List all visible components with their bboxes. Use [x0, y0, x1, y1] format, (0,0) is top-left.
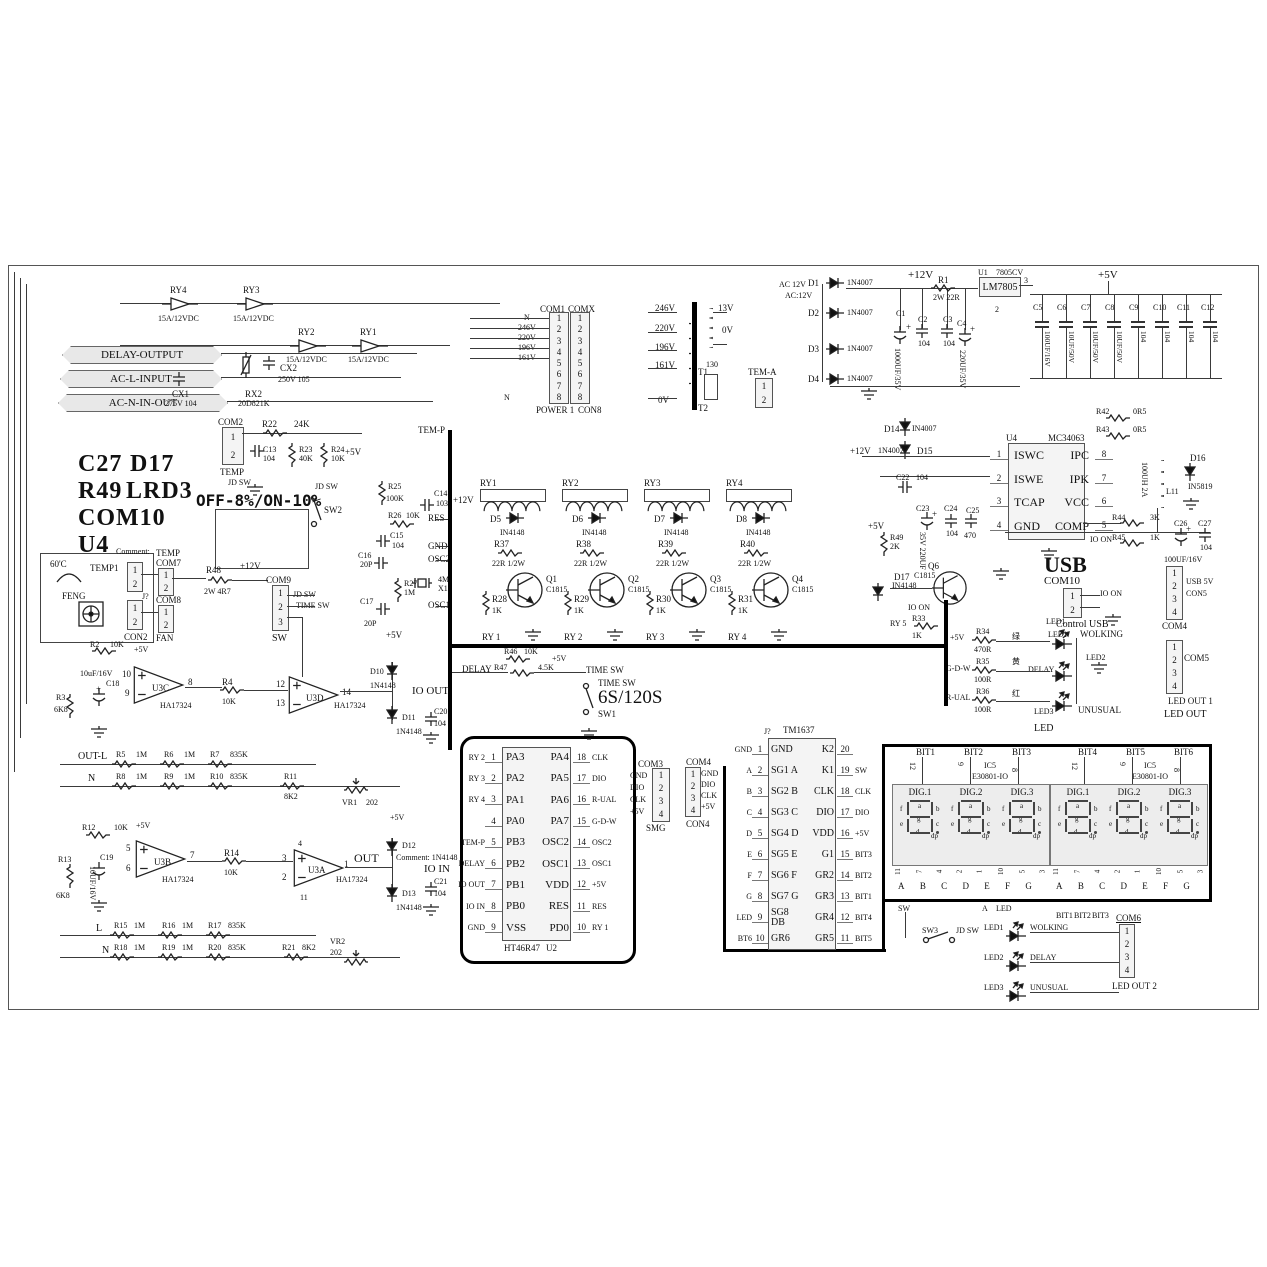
- pin-name: GND: [768, 745, 804, 755]
- part-value: 10UF/50V: [1115, 331, 1124, 363]
- part-value: 100R: [974, 706, 991, 714]
- part-number: HA17324: [160, 702, 192, 710]
- part-ref: VR1: [342, 799, 357, 807]
- part-value: 100R: [974, 676, 991, 684]
- com8-connector: 12: [158, 605, 174, 633]
- pin-number: 14: [837, 871, 853, 881]
- pin-number: 3: [1172, 669, 1177, 678]
- pin-number: 2: [1114, 870, 1121, 874]
- resistor-ref: R31: [738, 595, 753, 604]
- pin-name: IPK: [1051, 473, 1095, 485]
- resistor-icon: [482, 591, 490, 615]
- diode-icon: [670, 512, 688, 524]
- pin-row: BT610GR6GR511BIT5: [720, 928, 889, 949]
- resistor-value: 1K: [656, 607, 666, 615]
- pin-number: 3: [557, 337, 562, 346]
- part-ref: R48: [206, 566, 221, 575]
- resistor-icon: [931, 284, 955, 292]
- diode-icon: [899, 418, 911, 436]
- pin-row: IO OUT7PB1VDD12+5V: [455, 875, 632, 896]
- power-label: +5V: [386, 631, 402, 640]
- pin-number: 2: [995, 306, 999, 314]
- part-value: 24K: [294, 420, 310, 429]
- relay-ref: RY2: [562, 479, 579, 488]
- connector-label: TEMP: [156, 549, 180, 558]
- net-label: BIT3: [853, 851, 889, 859]
- connector-label: LED OUT 2: [1112, 982, 1157, 991]
- part-ref: D4: [808, 375, 819, 384]
- resistor-icon: [86, 831, 110, 839]
- pin-row: DELAY6PB2OSC113OSC1: [455, 853, 632, 874]
- display-bottom-pins: 1174211053: [1053, 868, 1203, 875]
- part-value: 104: [434, 890, 446, 898]
- part-value: 8K2: [302, 944, 316, 952]
- net-label: TEM-P: [418, 426, 445, 435]
- part-value: 1M: [184, 751, 195, 759]
- wire: [185, 687, 222, 688]
- part-value: 1M: [134, 944, 145, 952]
- net-label: +5V: [630, 808, 644, 816]
- transistor-icon: [752, 571, 790, 609]
- net-label: RY 4: [728, 633, 746, 642]
- diode-icon: [1184, 463, 1196, 481]
- temp1-connector: 12: [127, 562, 143, 592]
- wire: [242, 433, 362, 434]
- net-label: G: [720, 893, 752, 901]
- net-label: BIT3: [1092, 912, 1109, 920]
- resistor-icon: [662, 549, 686, 557]
- part-ref: X1: [438, 585, 448, 593]
- rail-capacitor: C11104: [1176, 294, 1198, 380]
- segment-letter: B: [1078, 882, 1084, 891]
- wire: [1180, 757, 1181, 784]
- pin-number: 7: [916, 870, 923, 874]
- schematic-canvas: DELAY-OUTPUT AC-L-INPUT AC-N-IN-OUT RY4 …: [0, 0, 1267, 1267]
- net-label: GND: [630, 772, 647, 780]
- part-value: 2K: [890, 543, 900, 551]
- net-label: RY 2: [564, 633, 582, 642]
- resistor-icon: [280, 782, 304, 790]
- segment-label: b: [1196, 805, 1200, 813]
- pin-name: PA2: [502, 773, 539, 784]
- resistor-icon: [92, 647, 116, 655]
- ground-icon: [90, 726, 108, 738]
- part-ref: C8: [1105, 303, 1114, 312]
- connector-label: CON5: [1186, 590, 1207, 598]
- seven-segment-glyph: [1167, 800, 1193, 834]
- pin-number: 4: [578, 348, 583, 357]
- pin-number: 1: [1172, 643, 1177, 652]
- resistor-icon: [972, 636, 996, 644]
- segment-letter: G: [1025, 882, 1032, 891]
- wire: [862, 456, 990, 457]
- part-ref: U1: [978, 269, 988, 277]
- part-value: 470: [964, 532, 976, 540]
- resistor-icon: [263, 429, 287, 437]
- part-value: 1N4007: [847, 309, 873, 317]
- capacitor-icon: [1198, 528, 1212, 542]
- wire: [890, 588, 932, 589]
- pin-number: 1: [231, 433, 236, 442]
- part-ref: L11: [1166, 488, 1179, 496]
- pin-row: LED9SG8 DBGR412BIT4: [720, 907, 889, 928]
- part-ref: D12: [402, 842, 416, 850]
- part-value: 1M: [182, 944, 193, 952]
- wire: [830, 386, 1020, 387]
- segment-letter: A: [1056, 882, 1063, 891]
- part-ref: C6: [1057, 303, 1066, 312]
- pin-number: 2: [282, 873, 287, 882]
- part-value: 40K: [299, 455, 313, 463]
- part-ref: C1: [896, 310, 905, 318]
- segment-label: e: [1109, 820, 1112, 828]
- pin-name: GND: [1008, 520, 1051, 532]
- part-ref: U3B: [154, 858, 171, 867]
- pin-number: 2: [1070, 606, 1075, 615]
- relay-rating: 15A/12VDC: [348, 356, 389, 364]
- diode-icon: [588, 512, 606, 524]
- wire: [244, 690, 288, 691]
- net-tag-ac-n-in-out: AC-N-IN-OUT: [58, 394, 228, 412]
- pin-name: COMP: [1051, 520, 1095, 532]
- part-value: 1N4007: [847, 375, 873, 383]
- net-label: TIME SW: [586, 666, 624, 675]
- part-value: 470R: [974, 646, 991, 654]
- pin-number: 11: [1053, 868, 1060, 875]
- part-ref: C7: [1081, 303, 1090, 312]
- tm1637-pins: GND1GNDK220A2SG1 AK119SWB3SG2 BCLK18CLKC…: [720, 739, 889, 949]
- net-label: BIT6: [1174, 748, 1193, 757]
- color-label: 红: [1012, 690, 1020, 698]
- pin-row: A2SG1 AK119SW: [720, 760, 889, 781]
- annotation-text: LRD3: [126, 479, 193, 503]
- resistor-icon: [206, 953, 230, 961]
- relay-rating: 15A/12VDC: [158, 315, 199, 323]
- diode-ref: D8: [736, 515, 747, 524]
- part-ref: LED3: [984, 984, 1004, 992]
- wire: [1030, 932, 1119, 933]
- pin-number: 4: [1125, 966, 1130, 975]
- part-ref: R23: [299, 446, 312, 454]
- bus-line: [944, 600, 948, 706]
- part-ref: U3A: [308, 866, 326, 875]
- capacitor-icon: [893, 326, 907, 344]
- part-ref: J?: [764, 728, 771, 736]
- display-module-2: DIG.1 a f b g e c d dp DIG.2 a f b g e c…: [1050, 784, 1208, 866]
- part-ref: R20: [208, 944, 221, 952]
- part-value: 10K: [331, 455, 345, 463]
- net-label: N: [102, 946, 109, 956]
- net-label: IO OUT: [412, 686, 449, 697]
- net-label: BIT4: [1078, 748, 1097, 757]
- wire: [287, 606, 315, 607]
- part-number: TM1637: [783, 726, 815, 735]
- part-ref: R26: [388, 512, 401, 520]
- wire: [470, 338, 549, 339]
- inductor-icon: [1150, 460, 1164, 508]
- resistor-value: 1K: [492, 607, 502, 615]
- pin-name: PB0: [502, 901, 539, 912]
- resistor-value: 22R 1/2W: [574, 560, 607, 568]
- wire: [1030, 992, 1119, 993]
- resistor-icon: [110, 931, 134, 939]
- pin-number: 5: [126, 844, 131, 853]
- net-label: G-D-W: [946, 665, 970, 673]
- potentiometer-icon: [342, 776, 370, 796]
- pin-number: 11: [837, 934, 853, 944]
- seven-segment-glyph: [1116, 800, 1142, 834]
- wire: [470, 348, 549, 349]
- rail-capacitor: C610UF/50V: [1056, 294, 1078, 380]
- digit-label: DIG.3: [1011, 787, 1034, 797]
- pin-number: 6: [485, 859, 502, 869]
- relay-rating: 15A/12VDC: [233, 315, 274, 323]
- resistor-icon: [1120, 539, 1144, 547]
- part-value: 1M: [136, 751, 147, 759]
- segment-label: e: [1058, 820, 1061, 828]
- pin-number: 1: [990, 450, 1008, 460]
- wire: [970, 757, 971, 784]
- wire: [846, 288, 978, 289]
- pin-name: VDD: [539, 880, 573, 891]
- resistor-icon: [66, 864, 74, 888]
- com4-left-connector: 1234: [685, 767, 701, 817]
- pin-number: 2: [1125, 940, 1130, 949]
- part-value: 1M: [136, 773, 147, 781]
- diode-value: IN4148: [746, 529, 770, 537]
- pin-number: 2: [133, 618, 138, 627]
- segment-label: c: [1145, 820, 1148, 828]
- pin-number: 2: [231, 451, 236, 460]
- part-ref: C9: [1129, 303, 1138, 312]
- capacitor-icon: [376, 602, 390, 616]
- part-ref: R35: [976, 658, 989, 666]
- pin-name: SG3 C: [768, 808, 804, 818]
- relay-contact-icon: [290, 338, 326, 354]
- pin-name: PA5: [539, 773, 573, 784]
- wire: [905, 912, 906, 938]
- net-label: RY 2: [455, 754, 485, 762]
- switch-ref: SW1: [598, 710, 616, 719]
- pin-number: 3: [278, 618, 283, 627]
- part-value: 1M: [182, 922, 193, 930]
- part-ref: C24: [944, 505, 957, 513]
- pin-number: 14: [573, 838, 590, 848]
- part-value: 3K: [1150, 514, 1160, 522]
- power-label: +12V: [850, 447, 871, 456]
- part-ref: RX2: [245, 390, 262, 399]
- pin-number: 4: [659, 810, 664, 819]
- connector-ref: COM7: [156, 559, 181, 568]
- pin-number: 4: [1172, 608, 1177, 617]
- segment-label: f: [900, 805, 902, 813]
- part-value: 1K: [1150, 534, 1160, 542]
- transformer-core: [692, 302, 697, 410]
- net-label: C: [720, 809, 752, 817]
- pin-row: C4SG3 CDIO17DIO: [720, 802, 889, 823]
- part-ref: D14: [884, 425, 900, 434]
- pin-number: 3: [691, 794, 696, 803]
- pin-number: 12: [276, 680, 285, 689]
- ground-icon: [90, 900, 108, 912]
- pin-number: 3: [1172, 595, 1177, 604]
- wire: [996, 671, 1050, 672]
- pin-number: 3: [1198, 870, 1205, 874]
- diode-icon: [826, 373, 844, 385]
- pin-name: PB1: [502, 880, 539, 891]
- part-ref: LED2: [1086, 654, 1106, 662]
- part-value: 1000UF/35V: [893, 348, 901, 390]
- wire: [648, 350, 677, 351]
- part-ref: R7: [210, 751, 219, 759]
- pin-name: GR2: [804, 871, 837, 881]
- pin-number: 2: [164, 621, 169, 630]
- comment-label: Comment:: [116, 548, 150, 556]
- part-value: 835K: [230, 751, 248, 759]
- pin-number: 2: [659, 784, 664, 793]
- wire: [1157, 508, 1158, 532]
- part-ref: R18: [114, 944, 127, 952]
- part-ref: R19: [162, 944, 175, 952]
- pin-name: SG7 G: [768, 892, 804, 902]
- resistor-icon: [1106, 432, 1130, 440]
- wire: [470, 328, 549, 329]
- pin-number: 7: [578, 382, 583, 391]
- pin-row: GND1GNDK220: [720, 739, 889, 760]
- part-value: 10UF/16V: [88, 866, 96, 900]
- part-ref: U3C: [152, 684, 169, 693]
- relay-driver-cell: RY2 D6 IN4148 R38 22R 1/2W Q2 C1815 R29 …: [560, 479, 642, 651]
- part-ref: LED2: [984, 954, 1004, 962]
- wire: [648, 398, 677, 399]
- resistor-value: 22R 1/2W: [492, 560, 525, 568]
- part-value: 4.5K: [538, 664, 554, 672]
- wire: [20, 278, 21, 738]
- com7-connector: 12: [158, 568, 174, 596]
- segment-letter: F: [1005, 882, 1010, 891]
- resistor-icon: [1120, 519, 1144, 527]
- part-value: 1M: [404, 589, 415, 597]
- connector-label: SW: [272, 634, 287, 644]
- part-number: MC34063: [1048, 434, 1085, 443]
- wire: [822, 284, 823, 382]
- pin-name: ISWC: [1008, 449, 1051, 461]
- part-number: E30801-IO: [972, 773, 1008, 781]
- relay-ref: RY1: [480, 479, 497, 488]
- power-label: +12V: [240, 562, 261, 571]
- part-value: 10K: [224, 869, 238, 877]
- relay-driver-cell: RY1 D5 IN4148 R37 22R 1/2W Q1 C1815 R28 …: [478, 479, 560, 651]
- net-label: BIT1: [916, 748, 935, 757]
- pin-number: 1: [164, 571, 169, 580]
- resistor-icon: [972, 666, 996, 674]
- pin-name: CLK: [804, 787, 837, 797]
- wire: [60, 764, 316, 765]
- pin-number: 3: [485, 795, 502, 805]
- pin-number: 8: [557, 393, 562, 402]
- net-tag-label: AC-L-INPUT: [110, 373, 172, 385]
- part-ref: R5: [116, 751, 125, 759]
- part-value: IN4007: [912, 425, 936, 433]
- part-ref: C10: [1153, 303, 1166, 312]
- usb-title: USB: [1044, 554, 1087, 576]
- wire: [996, 701, 1050, 702]
- segment-label: b: [987, 805, 991, 813]
- segment-letter: E: [984, 882, 990, 891]
- pin-number: 2: [752, 766, 768, 776]
- ht46r47-pins: RY 21PA3PA418CLKRY 32PA2PA517DIORY 43PA1…: [455, 747, 632, 939]
- power-label: +5V: [390, 814, 404, 822]
- segment-label: f: [1002, 805, 1004, 813]
- seven-segment-glyph: [1009, 800, 1035, 834]
- pin-number: 1: [578, 314, 583, 323]
- resistor-icon: [208, 782, 232, 790]
- pin-row: RY 32PA2PA517DIO: [455, 768, 632, 789]
- pin-number: 15: [837, 850, 853, 860]
- net-label: CLK: [853, 788, 889, 796]
- part-ref: LED1: [984, 924, 1004, 932]
- resistor-value: 22R 1/2W: [656, 560, 689, 568]
- connector-ref: COM4: [1162, 622, 1187, 631]
- net-label: E: [720, 851, 752, 859]
- transistor-icon: [588, 571, 626, 609]
- pin-number: 14: [342, 688, 351, 697]
- rate-label: 6S/120S: [598, 688, 662, 707]
- digit-label: DIG.2: [960, 787, 983, 797]
- pin-number: 1: [659, 771, 664, 780]
- status-label: WOLKING: [1080, 630, 1123, 639]
- part-ref: C11: [1177, 303, 1190, 312]
- connector-label: SMG: [646, 824, 666, 833]
- part-ref: C15: [390, 532, 403, 540]
- wire: [648, 312, 677, 313]
- net-label: A: [720, 767, 752, 775]
- pin-number: 6: [578, 370, 583, 379]
- status-label: UNUSUAL: [1078, 706, 1121, 715]
- net-label: IO IN: [424, 864, 450, 875]
- part-value: 202: [366, 799, 378, 807]
- net-label: LED: [996, 905, 1012, 913]
- part-number: HA17324: [336, 876, 368, 884]
- pin-number: 7: [485, 880, 502, 890]
- capacitor-icon: [898, 480, 912, 494]
- connector-ref: COM5: [1184, 654, 1209, 663]
- part-value: 103: [436, 500, 448, 508]
- part-value: 2W 4R7: [204, 588, 231, 596]
- resistor-icon: [220, 686, 244, 694]
- relay-driver-cell: RY3 D7 IN4148 R39 22R 1/2W Q3 C1815 R30 …: [642, 479, 724, 651]
- net-label: RES: [590, 903, 632, 911]
- pin-number: 6: [557, 370, 562, 379]
- pin-row: GND9VSSPD010RY 1: [455, 917, 632, 938]
- diode-icon: [826, 343, 844, 355]
- part-ref: R15: [114, 922, 127, 930]
- capacitor-icon: [964, 514, 978, 528]
- wire: [436, 606, 448, 607]
- wire: [172, 578, 206, 579]
- pin-number: 1: [1134, 870, 1141, 874]
- wire: [996, 641, 1050, 642]
- pin-number: 2: [1172, 656, 1177, 665]
- part-value: 104: [946, 530, 958, 538]
- part-ref: R24: [331, 446, 344, 454]
- net-label: RY 3: [646, 633, 664, 642]
- connector-label: CON2: [124, 633, 148, 642]
- status-label: UNUSUAL: [1030, 984, 1068, 992]
- net-label: BIT2: [853, 872, 889, 880]
- relay-driver-cell: RY4 D8 IN4148 R40 22R 1/2W Q4 C1815 R31 …: [724, 479, 806, 651]
- part-value: 0R5: [1133, 408, 1146, 416]
